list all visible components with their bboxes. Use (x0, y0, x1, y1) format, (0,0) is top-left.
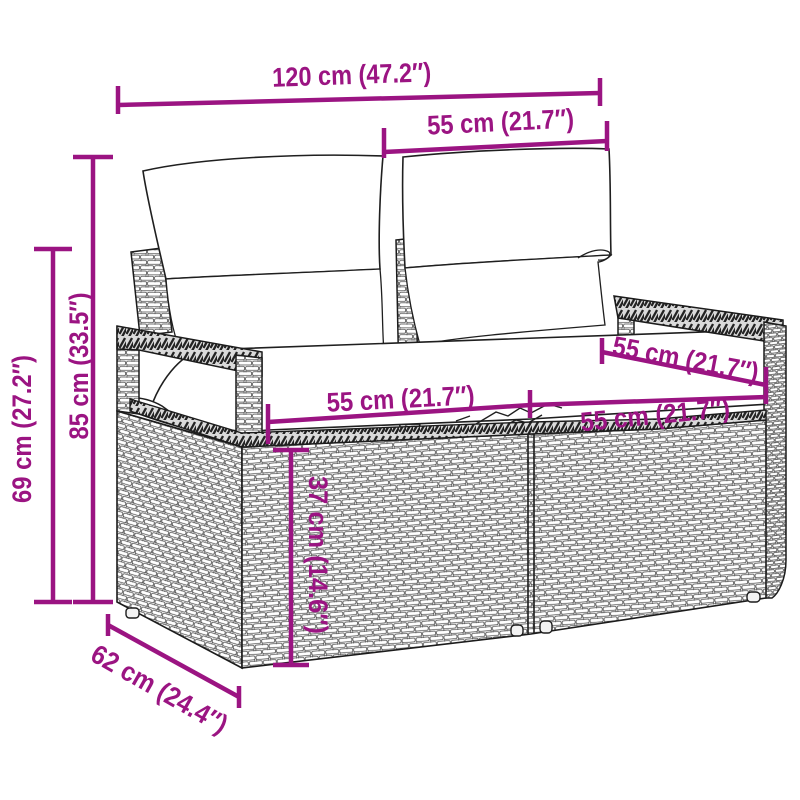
svg-text:69 cm (27.2″): 69 cm (27.2″) (7, 355, 37, 503)
svg-text:120 cm (47.2″): 120 cm (47.2″) (272, 57, 432, 93)
svg-text:37 cm (14.6″): 37 cm (14.6″) (303, 476, 333, 634)
svg-text:85 cm (33.5″): 85 cm (33.5″) (64, 293, 94, 440)
